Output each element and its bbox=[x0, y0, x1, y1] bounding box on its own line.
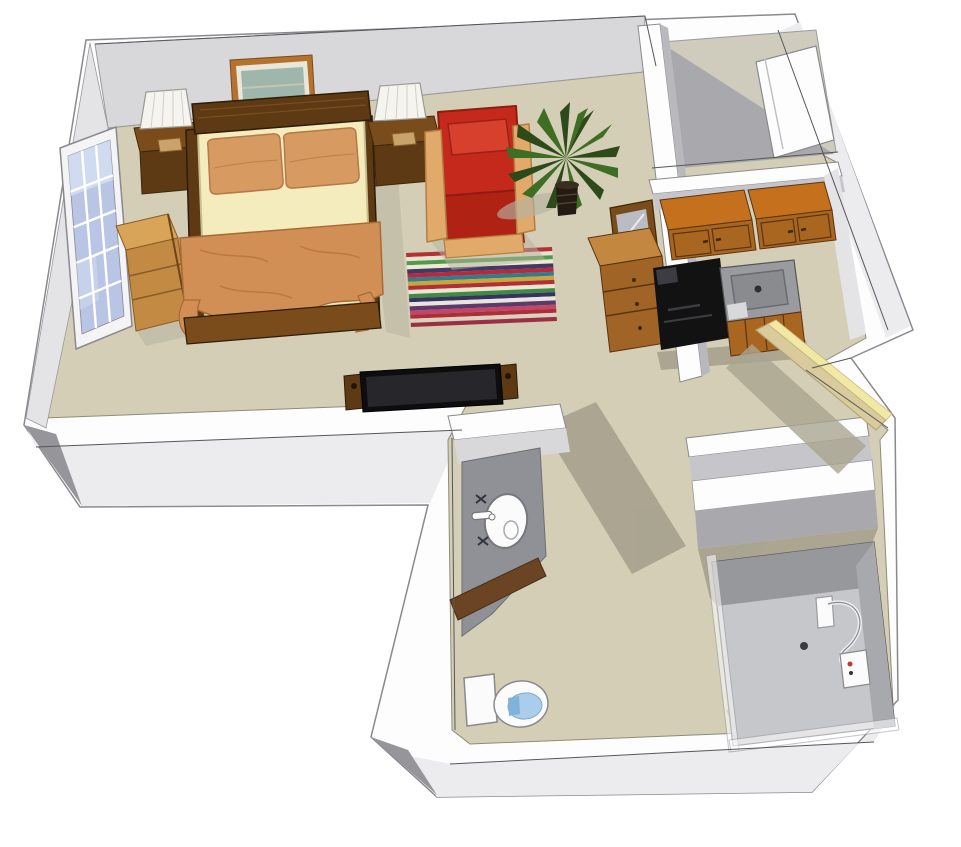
pane-highlight bbox=[76, 255, 99, 310]
red-armchair bbox=[425, 106, 546, 270]
shower-control-box bbox=[840, 650, 870, 688]
pillow-left bbox=[208, 134, 284, 194]
hand-shower-bracket bbox=[816, 596, 834, 628]
artwork bbox=[241, 67, 305, 100]
lamp-base-plate bbox=[158, 138, 182, 152]
sink-drain bbox=[755, 286, 762, 293]
floor-plan-rendering bbox=[0, 0, 961, 847]
toilet-tank bbox=[464, 674, 497, 726]
shower-drain bbox=[800, 642, 808, 650]
flat-screen-tv bbox=[344, 364, 518, 412]
counter-pad bbox=[727, 302, 748, 320]
shower-stall bbox=[706, 542, 899, 752]
pillow-right bbox=[284, 128, 360, 188]
lamp-base-plate bbox=[392, 132, 416, 146]
toilet-seat-notch bbox=[508, 696, 520, 716]
floor-plan-stage bbox=[0, 0, 961, 847]
headrest-pillow bbox=[448, 119, 510, 155]
upper-cabinet-right bbox=[748, 182, 836, 249]
upper-cabinet-left bbox=[660, 190, 756, 260]
range-panel bbox=[656, 267, 678, 285]
faucet bbox=[472, 511, 495, 520]
plant-pot-rim bbox=[555, 181, 579, 189]
